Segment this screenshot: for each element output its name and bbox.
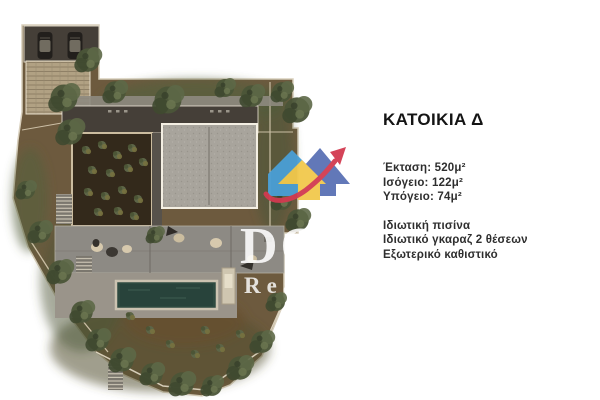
feature-list: Ιδιωτική πισίνα Ιδιωτικό γκαραζ 2 θέσεων… xyxy=(383,219,593,263)
feature-garage: Ιδιωτικό γκαραζ 2 θέσεων xyxy=(383,233,593,248)
page-title: ΚΑΤΟΙΚΙΑ Δ xyxy=(383,110,593,130)
pool-planter-inner xyxy=(225,274,233,288)
roof-corridor xyxy=(152,133,162,226)
watermark-text-sub: Real E xyxy=(244,273,346,298)
stat-total-area: Έκταση: 520μ² xyxy=(383,161,593,176)
feature-outdoor-seating: Εξωτερικό καθιστικό xyxy=(383,248,593,263)
brochure-page: DO Real E ΚΑΤΟΙΚΙΑ Δ Έκταση: 520μ² Ισόγε… xyxy=(0,0,600,400)
area-stats: Έκταση: 520μ² Ισόγειο: 122μ² Υπόγειο: 74… xyxy=(383,161,593,205)
stat-basement: Υπόγειο: 74μ² xyxy=(383,190,593,205)
pool-water-texture xyxy=(120,284,213,306)
info-panel: ΚΑΤΟΙΚΙΑ Δ Έκταση: 520μ² Ισόγειο: 122μ² … xyxy=(383,110,593,262)
feature-pool: Ιδιωτική πισίνα xyxy=(383,219,593,234)
watermark-text-main: DO xyxy=(240,218,324,275)
car xyxy=(38,32,53,59)
stat-ground-floor: Ισόγειο: 122μ² xyxy=(383,176,593,191)
stairs-west xyxy=(56,194,72,224)
